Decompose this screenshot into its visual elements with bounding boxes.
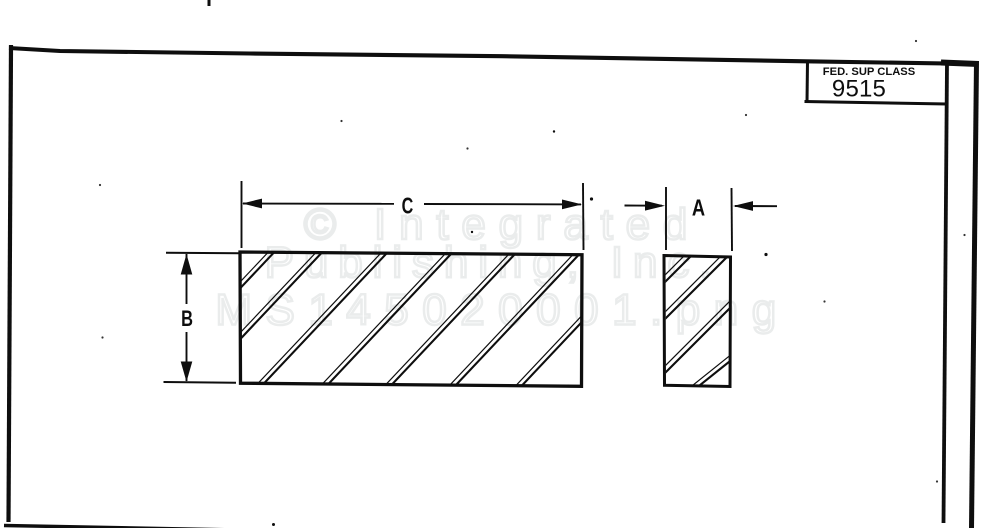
svg-text:C: C bbox=[402, 194, 414, 219]
svg-text:Publishing, Inc.: Publishing, Inc. bbox=[265, 238, 722, 287]
svg-text:9515: 9515 bbox=[832, 76, 886, 103]
svg-text:B: B bbox=[181, 306, 193, 331]
svg-text:A: A bbox=[692, 195, 705, 221]
